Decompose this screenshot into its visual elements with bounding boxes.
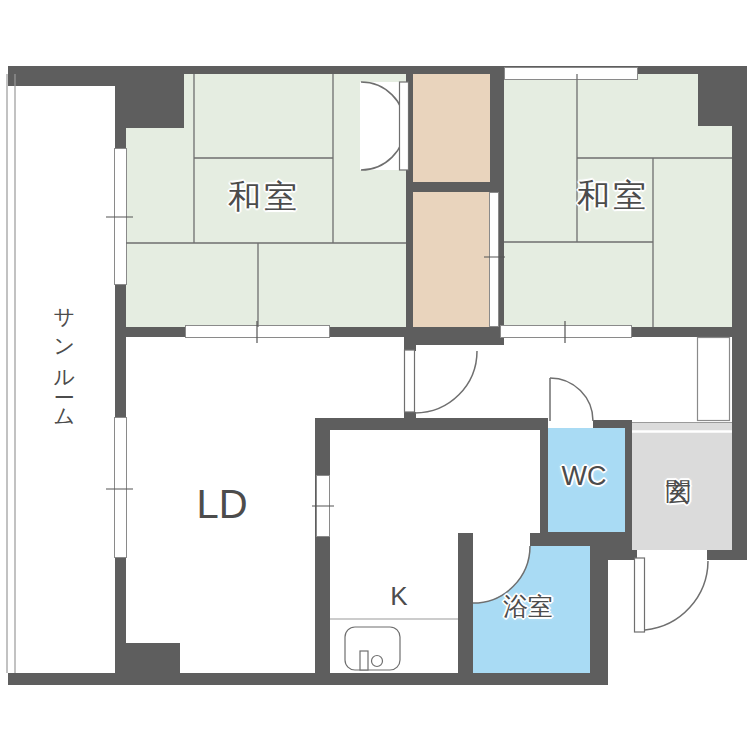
wall-genkan-bottom-left	[610, 550, 637, 560]
entrance-door	[635, 558, 709, 632]
closet-upper-floor	[413, 74, 490, 182]
kitchen-drain	[372, 656, 383, 667]
window-washitsu-right-top	[504, 67, 638, 80]
kitchen-counter	[330, 619, 458, 670]
label-kitchen: K	[379, 582, 419, 612]
opening-washitsu-left-ld	[185, 325, 330, 338]
label-bathroom: 浴室	[478, 592, 578, 621]
closet-lower-floor	[413, 192, 490, 327]
wc-door	[550, 378, 593, 421]
label-genkan: 玄関	[664, 458, 693, 462]
opening-washitsu-right-hall	[500, 325, 632, 338]
room-genkan-floor	[632, 422, 732, 550]
wall-kitchen-left	[315, 418, 330, 675]
wall-wc-right	[625, 420, 632, 545]
wall-genkan-bottom-right	[707, 550, 747, 560]
wall-sunroom-top	[8, 66, 115, 86]
shoe-cabinet	[698, 338, 730, 421]
opening-ld-kitchen	[316, 475, 330, 537]
wall-kitchen-top	[315, 418, 548, 430]
kitchen-sink	[345, 627, 400, 670]
ld-hall-door	[405, 350, 478, 413]
wall-right	[732, 66, 747, 560]
label-washitsu-left: 和室	[204, 178, 324, 216]
kitchen-faucet	[360, 651, 368, 670]
window-sunroom-washitsu	[114, 148, 127, 285]
sliding-door-closet-washitsu-right	[489, 192, 499, 327]
label-wc: WC	[544, 461, 624, 492]
closet-door-recess	[360, 82, 406, 170]
window-sunroom-ld	[114, 417, 127, 558]
floor-plan: 和室 和室 サンルーム LD K WC 玄関 浴室	[0, 0, 750, 750]
wall-bottom	[8, 673, 600, 685]
wall-ld-door-jamb-bottom	[404, 412, 416, 422]
wall-ld-pillar	[115, 643, 180, 675]
label-sunroom: サンルーム	[52, 293, 76, 424]
sunroom-glass-lines	[7, 74, 15, 673]
label-washitsu-right: 和室	[553, 177, 673, 215]
wall-ld-door-jamb-top	[404, 337, 416, 351]
label-ld: LD	[162, 481, 282, 527]
